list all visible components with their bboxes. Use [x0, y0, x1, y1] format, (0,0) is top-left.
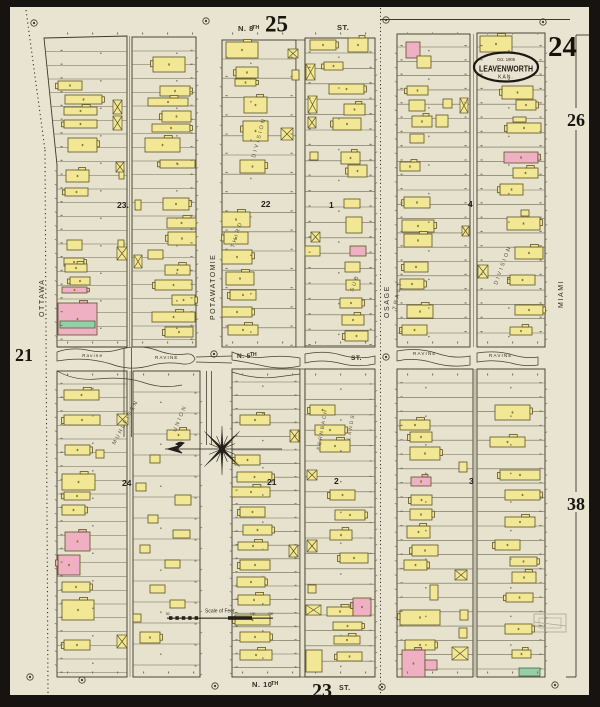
- svg-text:OTTAWA: OTTAWA: [39, 278, 46, 317]
- svg-text:23: 23: [312, 680, 332, 702]
- svg-text:200: 200: [268, 612, 274, 616]
- svg-text:24: 24: [548, 31, 577, 63]
- svg-text:RAVINE: RAVINE: [489, 353, 513, 358]
- svg-text:Ravine: Ravine: [82, 353, 103, 358]
- svg-text:ST.: ST.: [339, 685, 351, 692]
- svg-text:OSAGE: OSAGE: [384, 285, 391, 318]
- svg-text:TH: TH: [271, 681, 278, 687]
- svg-text:25: 25: [265, 12, 288, 37]
- svg-text:RAVINE: RAVINE: [155, 355, 179, 360]
- svg-text:2: 2: [334, 476, 339, 486]
- svg-text:MIAMI: MIAMI: [558, 280, 565, 308]
- svg-text:TH: TH: [250, 352, 257, 358]
- svg-text:KAN.: KAN.: [498, 75, 514, 81]
- svg-text:ST.: ST.: [337, 23, 349, 32]
- svg-text:3: 3: [469, 476, 474, 486]
- svg-text:21: 21: [267, 477, 277, 487]
- svg-text:22: 22: [261, 199, 271, 209]
- svg-text:1: 1: [329, 200, 334, 210]
- svg-text:Scale of Feet.: Scale of Feet.: [205, 609, 236, 615]
- svg-text:ST.: ST.: [351, 355, 362, 362]
- svg-text:4: 4: [468, 199, 473, 209]
- svg-text:24: 24: [122, 478, 132, 488]
- svg-text:POTAWATOMIE: POTAWATOMIE: [210, 254, 217, 320]
- svg-text:38: 38: [567, 494, 585, 514]
- svg-text:N. 5: N. 5: [237, 353, 251, 360]
- svg-text:Oct. 1905: Oct. 1905: [497, 57, 516, 62]
- svg-text:N. 10: N. 10: [252, 680, 272, 689]
- svg-text:TH: TH: [252, 25, 259, 31]
- svg-text:23.: 23.: [117, 200, 129, 210]
- svg-text:50: 50: [166, 612, 170, 616]
- svg-text:LEAVENWORTH: LEAVENWORTH: [479, 65, 533, 74]
- svg-text:26: 26: [567, 110, 585, 130]
- svg-text:RAVINE: RAVINE: [413, 351, 437, 356]
- svg-text:150: 150: [250, 612, 256, 616]
- svg-text:21: 21: [15, 345, 33, 365]
